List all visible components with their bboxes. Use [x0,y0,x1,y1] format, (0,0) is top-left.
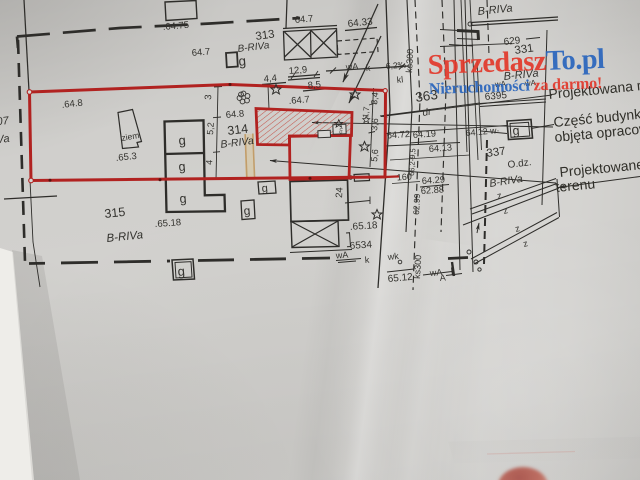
svg-text:wA: wA [524,78,537,88]
svg-text:5,2: 5,2 [205,122,216,135]
svg-text:g: g [238,53,247,69]
svg-text:64.19: 64.19 [412,128,436,140]
svg-text:wA: wA [344,61,358,72]
svg-text:g: g [512,123,520,138]
svg-text:12,9: 12,9 [288,64,307,77]
svg-text:terenu: terenu [555,175,596,195]
svg-text:Projektowana ni: Projektowana ni [548,77,640,102]
svg-text:64.72: 64.72 [386,129,410,141]
svg-text:331: 331 [514,42,535,57]
svg-text:6395: 6395 [484,90,508,103]
svg-text:ziem: ziem [121,130,140,143]
svg-text:dr: dr [422,106,433,118]
svg-text:Va: Va [0,133,10,147]
svg-text:3: 3 [203,94,214,100]
svg-text:3,4: 3,4 [369,92,380,105]
svg-text:z: z [514,223,521,234]
svg-text:z: z [502,205,509,216]
svg-text:.64.7: .64.7 [288,94,310,107]
svg-text:62.88: 62.88 [420,184,444,196]
svg-text:64.7: 64.7 [294,13,313,26]
svg-text:66,2-9,5: 66,2-9,5 [407,148,417,176]
svg-text:5,6: 5,6 [369,149,380,162]
svg-text:B-RIVa: B-RIVa [489,173,524,190]
svg-text:315: 315 [104,205,126,221]
svg-text:B-RIVa: B-RIVa [237,40,270,55]
svg-text:objęta opracow: objęta opracow [554,120,640,145]
svg-text:ks300: ks300 [412,255,423,280]
svg-text:ks300: ks300 [404,49,415,74]
svg-text:4,4: 4,4 [263,73,277,85]
svg-text:A: A [439,273,446,283]
svg-text:160: 160 [396,171,412,182]
svg-text:B-RIVa: B-RIVa [220,135,255,151]
svg-text:B-RIVa: B-RIVa [503,67,539,83]
svg-text:k: k [365,63,371,73]
svg-text:62.99: 62.99 [411,193,422,215]
svg-text:65.12: 65.12 [387,272,413,285]
svg-text:314: 314 [227,122,249,138]
svg-text:g: g [178,159,186,174]
svg-text:kl: kl [396,74,404,85]
svg-text:24: 24 [334,187,346,198]
svg-text:Projektowane t: Projektowane t [559,155,640,180]
svg-text:.64.8: .64.8 [61,97,83,110]
svg-text:SprzedaszTo.pl: SprzedaszTo.pl [427,44,605,81]
svg-text:z: z [496,190,503,201]
svg-text:cn: cn [338,127,345,134]
svg-text:z: z [522,238,529,249]
svg-text:.64.75: .64.75 [162,20,189,33]
svg-text:6,2‰: 6,2‰ [385,60,406,71]
svg-text:64.12 w·: 64.12 w· [465,125,499,138]
svg-text:g: g [261,183,268,195]
svg-text:g: g [179,191,187,206]
svg-text:k: k [364,255,370,265]
svg-text:.65.18: .65.18 [154,217,181,230]
svg-text:64.29: 64.29 [421,174,445,186]
svg-text:337: 337 [486,145,507,160]
svg-text:B-RIVa: B-RIVa [106,229,144,245]
svg-text:.65.18: .65.18 [349,220,378,233]
svg-text:wA: wA [428,267,442,278]
svg-text:O.dz.: O.dz. [507,157,532,171]
svg-text:wk: wk [386,251,399,262]
svg-text:g: g [178,132,187,148]
svg-text:07: 07 [0,115,10,129]
svg-text:629: 629 [503,35,521,48]
svg-text:wA: wA [494,79,507,89]
svg-text:3,6: 3,6 [369,118,380,131]
svg-text:g: g [243,203,251,218]
svg-text:1,7: 1,7 [361,106,371,119]
svg-text:64.13: 64.13 [428,142,452,154]
svg-text:g: g [177,263,186,279]
svg-text:64.7: 64.7 [191,46,210,59]
svg-text:4: 4 [204,159,214,165]
svg-text:363: 363 [414,87,438,105]
svg-text:Nieruchomości za darmo!: Nieruchomości za darmo! [429,74,603,98]
svg-text:6534: 6534 [349,239,372,252]
svg-text:wA: wA [334,250,348,261]
svg-text:313: 313 [255,28,276,43]
svg-text:Część budynku: Część budynku [553,105,640,130]
svg-text:64.8: 64.8 [225,108,244,121]
svg-text:64.33: 64.33 [347,16,373,30]
svg-text:.65.3: .65.3 [115,151,137,164]
svg-text:B-RIVa: B-RIVa [477,2,513,18]
svg-text:8,5: 8,5 [307,79,321,91]
